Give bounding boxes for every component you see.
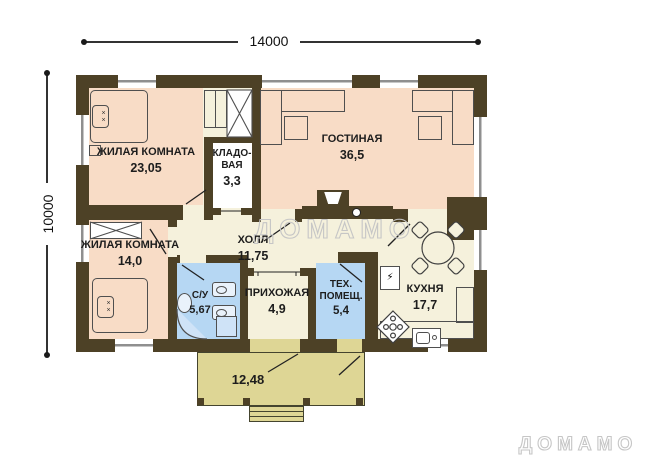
room-area: 36,5 <box>302 148 402 163</box>
wardrobe-icon <box>90 222 142 239</box>
window <box>118 75 156 88</box>
wall-wardrobe-bottom <box>213 137 252 143</box>
window <box>262 75 352 88</box>
watermark-center: ДОМАМО <box>240 214 430 245</box>
window <box>380 75 418 88</box>
window <box>474 230 487 270</box>
washing-machine-icon <box>216 316 237 337</box>
room-area: 12,48 <box>220 372 276 387</box>
wall-stub <box>205 205 213 220</box>
room-name: ЖИЛАЯ КОМНАТА <box>96 146 196 159</box>
sofa-icon <box>260 90 282 145</box>
terrace-post <box>197 398 204 405</box>
fireplace-firebox <box>317 190 349 206</box>
room-area: 11,75 <box>213 249 293 264</box>
pillow-icon: ×× <box>92 105 109 128</box>
label-entry: ПРИХОЖАЯ 4,9 <box>237 287 317 317</box>
label-terrace: 12,48 <box>220 372 276 387</box>
door-opening-utility <box>337 339 362 352</box>
label-utility: ТЕХ. ПОМЕЩ. 5,4 <box>312 279 370 318</box>
side-table-icon <box>418 116 442 140</box>
label-living: ГОСТИНАЯ 36,5 <box>302 133 402 163</box>
dimension-dot <box>44 352 50 358</box>
wall-storage-bottom <box>213 208 221 215</box>
wall-bedroom2-right <box>168 220 177 227</box>
dimension-dot <box>475 39 481 45</box>
terrace-steps <box>249 406 304 422</box>
pillow-icon: ×× <box>97 296 114 318</box>
floor-plan: 14000 10000 <box>0 0 665 470</box>
room-name: С/У <box>175 290 225 302</box>
room-area: 23,05 <box>96 161 196 176</box>
wall-bedroom1-bottom <box>89 205 183 220</box>
kitchen-sink-icon <box>412 328 441 348</box>
room-name: ГОСТИНАЯ <box>302 133 402 146</box>
room-name: ТЕХ. ПОМЕЩ. <box>312 279 370 303</box>
room-name: КЛАДО-ВАЯ <box>209 148 255 172</box>
room-name: ЖИЛАЯ КОМНАТА <box>80 239 180 252</box>
room-name: КУХНЯ <box>385 283 465 296</box>
window <box>474 117 487 197</box>
window <box>115 339 153 352</box>
label-storage: КЛАДО-ВАЯ 3,3 <box>209 148 255 188</box>
room-area: 5,4 <box>312 305 370 319</box>
wall-pier <box>447 197 474 240</box>
dimension-height-label: 10000 <box>40 183 56 245</box>
room-name: ПРИХОЖАЯ <box>237 287 317 300</box>
dimension-width-label: 14000 <box>238 33 300 49</box>
shelf-icon <box>204 90 227 128</box>
terrace-post <box>243 398 250 405</box>
watermark-corner: ДОМАМО <box>498 434 658 456</box>
wall-utility-top <box>338 252 365 263</box>
dimension-dot <box>44 70 50 76</box>
sofa-icon <box>452 90 474 145</box>
room-area: 5,67 <box>175 304 225 317</box>
window <box>76 115 89 165</box>
room-area: 4,9 <box>237 302 317 317</box>
label-kitchen: КУХНЯ 17,7 <box>385 283 465 313</box>
wall-entry-top <box>248 268 254 276</box>
label-bathroom: С/У 5,67 <box>175 290 225 317</box>
room-area: 14,0 <box>80 254 180 269</box>
room-area: 3,3 <box>209 174 255 189</box>
door-opening-entrance <box>250 339 300 352</box>
terrace-post <box>303 398 310 405</box>
label-bedroom1: ЖИЛАЯ КОМНАТА 23,05 <box>96 146 196 176</box>
label-bedroom2: ЖИЛАЯ КОМНАТА 14,0 <box>80 239 180 269</box>
terrace-post <box>356 398 363 405</box>
room-area: 17,7 <box>385 298 465 313</box>
wardrobe-icon <box>227 90 252 137</box>
dimension-dot <box>81 39 87 45</box>
